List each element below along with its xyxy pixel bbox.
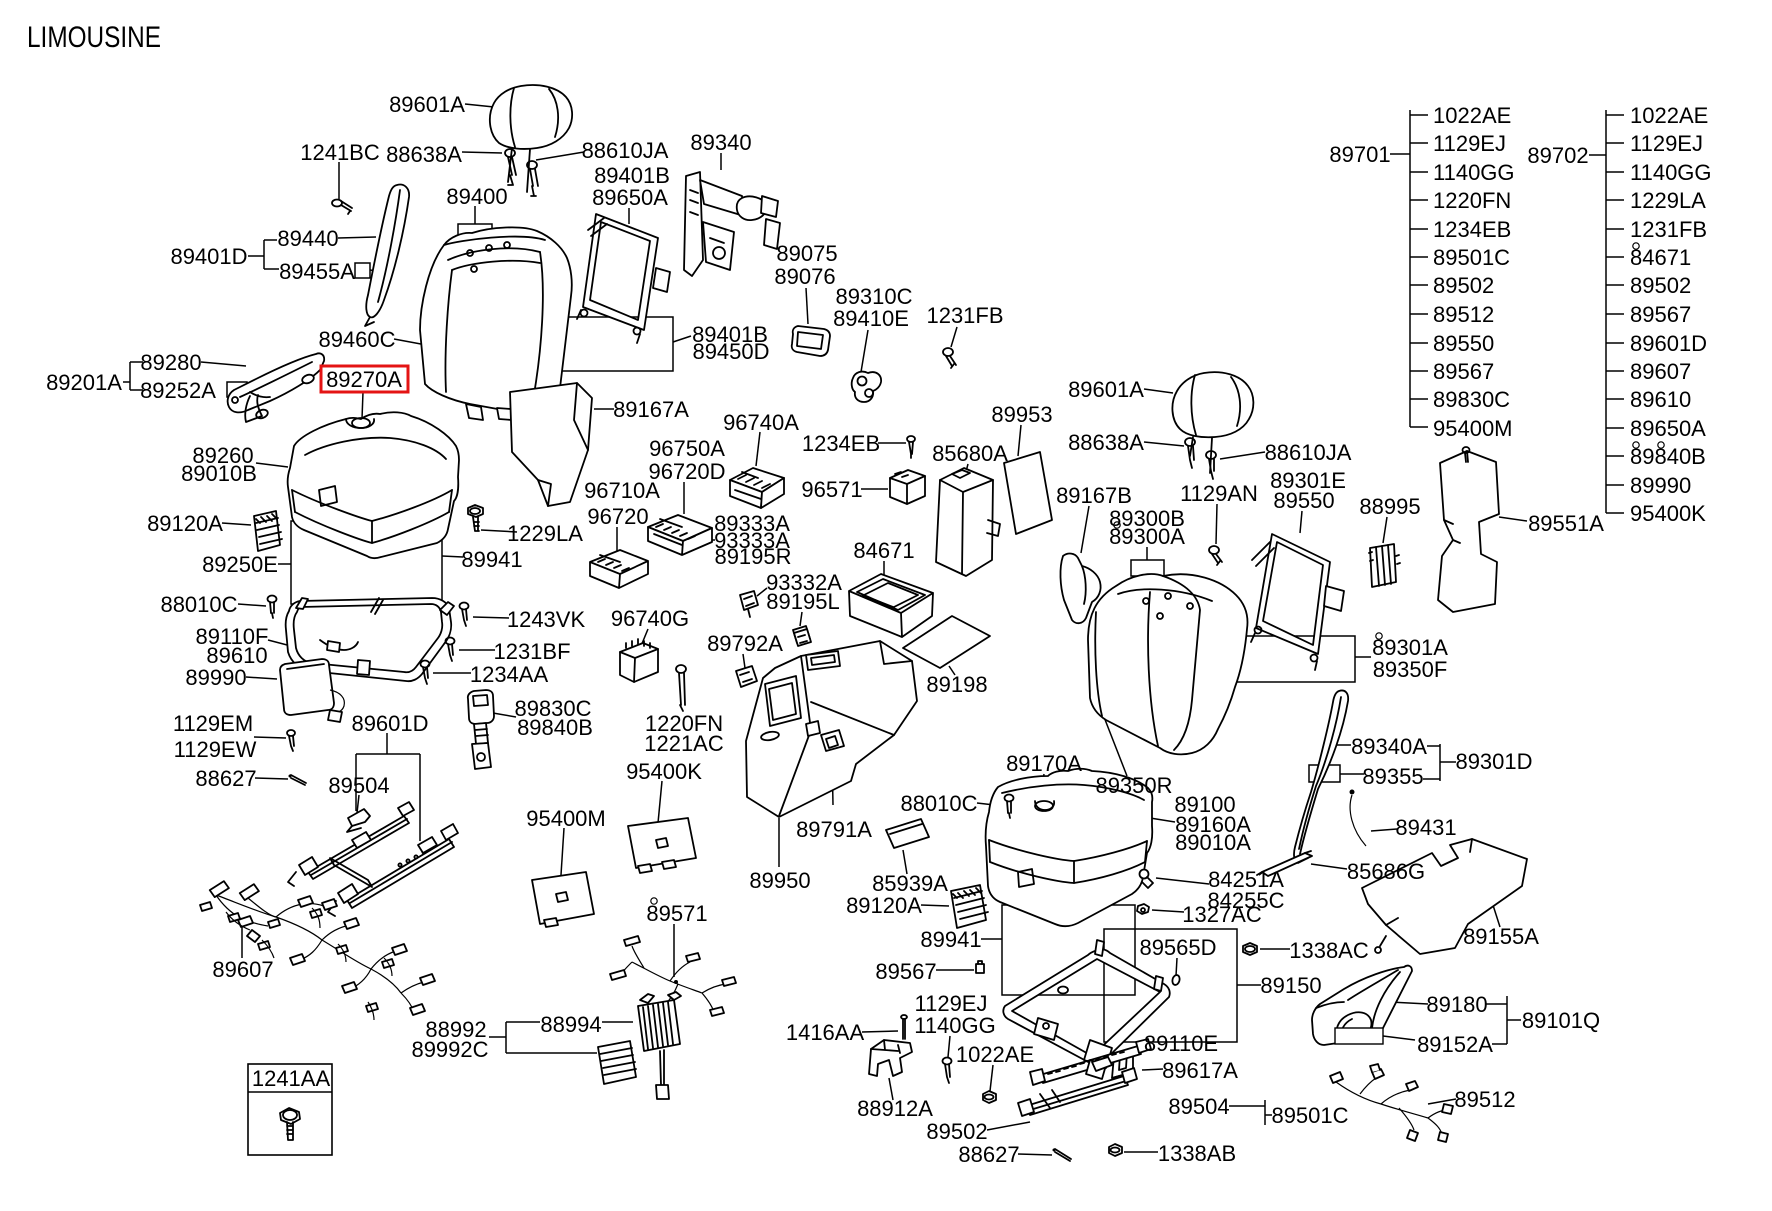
svg-text:89410E: 89410E <box>833 306 909 331</box>
svg-text:89195L: 89195L <box>766 589 839 614</box>
svg-text:89280: 89280 <box>140 350 201 375</box>
svg-text:89075: 89075 <box>776 241 837 266</box>
svg-text:89565D: 89565D <box>1139 935 1216 960</box>
svg-text:1234AA: 1234AA <box>470 662 549 687</box>
svg-text:1129EJ: 1129EJ <box>1433 131 1506 156</box>
svg-text:1231FB: 1231FB <box>926 303 1003 328</box>
svg-text:1129EM: 1129EM <box>173 711 253 736</box>
svg-text:89300A: 89300A <box>1109 524 1185 549</box>
svg-text:89830C: 89830C <box>1433 387 1510 412</box>
svg-text:89992C: 89992C <box>411 1037 488 1062</box>
svg-text:89120A: 89120A <box>147 511 223 536</box>
svg-text:89567: 89567 <box>1433 359 1494 384</box>
svg-text:89512: 89512 <box>1433 302 1494 327</box>
svg-text:88638A: 88638A <box>386 142 462 167</box>
svg-text:89076: 89076 <box>774 264 835 289</box>
svg-text:1129EJ: 1129EJ <box>1630 131 1703 156</box>
svg-text:1140GG: 1140GG <box>1630 160 1712 185</box>
svg-text:89941: 89941 <box>461 547 522 572</box>
svg-text:89152A: 89152A <box>1417 1032 1493 1057</box>
svg-text:89601A: 89601A <box>1068 377 1144 402</box>
svg-text:88610JA: 88610JA <box>582 138 669 163</box>
svg-text:96720D: 96720D <box>648 459 725 484</box>
svg-text:89571: 89571 <box>646 901 707 926</box>
svg-text:89350F: 89350F <box>1373 657 1448 682</box>
svg-text:95400M: 95400M <box>1433 416 1513 441</box>
svg-text:89340A: 89340A <box>1351 734 1427 759</box>
svg-text:89650A: 89650A <box>1630 416 1706 441</box>
svg-text:89601D: 89601D <box>351 711 428 736</box>
svg-text:89953: 89953 <box>991 402 1052 427</box>
svg-text:89431: 89431 <box>1395 815 1456 840</box>
svg-text:89617A: 89617A <box>1162 1058 1238 1083</box>
svg-text:89550: 89550 <box>1273 488 1334 513</box>
svg-text:1022AE: 1022AE <box>956 1042 1034 1067</box>
svg-text:84671: 84671 <box>1630 245 1691 270</box>
svg-text:89512: 89512 <box>1454 1087 1515 1112</box>
svg-text:89450D: 89450D <box>692 339 769 364</box>
svg-text:89791A: 89791A <box>796 817 872 842</box>
svg-text:1221AC: 1221AC <box>644 731 724 756</box>
svg-text:89110E: 89110E <box>1144 1031 1218 1056</box>
svg-text:89607: 89607 <box>1630 359 1691 384</box>
svg-text:89550: 89550 <box>1433 331 1494 356</box>
svg-text:89400: 89400 <box>446 184 507 209</box>
svg-text:84671: 84671 <box>853 538 914 563</box>
svg-text:89155A: 89155A <box>1463 924 1539 949</box>
svg-text:89167A: 89167A <box>613 397 689 422</box>
svg-text:1234EB: 1234EB <box>802 431 880 456</box>
svg-text:1243VK: 1243VK <box>507 607 586 632</box>
svg-text:89301D: 89301D <box>1455 749 1532 774</box>
svg-text:89440: 89440 <box>277 226 338 251</box>
svg-text:88912A: 88912A <box>857 1096 933 1121</box>
svg-text:88010C: 88010C <box>160 592 237 617</box>
svg-text:89941: 89941 <box>920 927 981 952</box>
svg-text:89501C: 89501C <box>1433 245 1510 270</box>
svg-text:89601D: 89601D <box>1630 331 1707 356</box>
svg-text:1229LA: 1229LA <box>507 521 583 546</box>
svg-text:1022AE: 1022AE <box>1630 103 1708 128</box>
svg-text:88627: 88627 <box>195 766 256 791</box>
svg-text:1338AB: 1338AB <box>1158 1141 1236 1166</box>
svg-text:89701: 89701 <box>1329 142 1390 167</box>
svg-text:1241BC: 1241BC <box>300 140 380 165</box>
svg-text:89990: 89990 <box>185 665 246 690</box>
svg-text:1129AN: 1129AN <box>1180 481 1258 506</box>
svg-text:89840B: 89840B <box>1630 444 1706 469</box>
svg-text:89792A: 89792A <box>707 631 783 656</box>
svg-text:96750A: 96750A <box>649 436 725 461</box>
svg-text:89567: 89567 <box>875 959 936 984</box>
svg-text:95400M: 95400M <box>526 806 606 831</box>
svg-text:88627: 88627 <box>958 1142 1019 1167</box>
svg-text:1327AC: 1327AC <box>1182 902 1262 927</box>
svg-text:89150: 89150 <box>1260 973 1321 998</box>
svg-text:89010A: 89010A <box>1175 830 1251 855</box>
svg-text:89502: 89502 <box>1630 273 1691 298</box>
svg-text:89504: 89504 <box>328 773 389 798</box>
svg-text:89195R: 89195R <box>714 544 791 569</box>
svg-text:89990: 89990 <box>1630 473 1691 498</box>
svg-text:89601A: 89601A <box>389 92 465 117</box>
svg-text:89460C: 89460C <box>318 327 395 352</box>
svg-text:89650A: 89650A <box>592 185 668 210</box>
svg-text:1220FN: 1220FN <box>1433 188 1511 213</box>
svg-text:1241AA: 1241AA <box>252 1066 331 1091</box>
svg-text:1234EB: 1234EB <box>1433 217 1511 242</box>
svg-text:89355: 89355 <box>1362 764 1423 789</box>
svg-text:88610JA: 88610JA <box>1265 440 1352 465</box>
svg-text:LIMOUSINE: LIMOUSINE <box>27 21 161 54</box>
svg-text:89610: 89610 <box>1630 387 1691 412</box>
svg-text:88010C: 88010C <box>900 791 977 816</box>
svg-text:1229LA: 1229LA <box>1630 188 1706 213</box>
svg-text:89340: 89340 <box>690 130 751 155</box>
svg-text:89504: 89504 <box>1168 1094 1229 1119</box>
svg-text:89252A: 89252A <box>140 378 216 403</box>
svg-text:1416AA: 1416AA <box>786 1020 865 1045</box>
svg-text:89120A: 89120A <box>846 893 922 918</box>
svg-text:89567: 89567 <box>1630 302 1691 327</box>
svg-text:89501C: 89501C <box>1271 1103 1348 1128</box>
svg-text:89180: 89180 <box>1426 992 1487 1017</box>
svg-text:1338AC: 1338AC <box>1289 938 1369 963</box>
svg-text:1231BF: 1231BF <box>493 639 570 664</box>
svg-text:89250E: 89250E <box>202 552 278 577</box>
svg-text:89101Q: 89101Q <box>1522 1008 1600 1033</box>
svg-text:89607: 89607 <box>212 957 273 982</box>
svg-text:96710A: 96710A <box>584 478 660 503</box>
svg-text:89198: 89198 <box>926 672 987 697</box>
svg-text:1140GG: 1140GG <box>914 1013 996 1038</box>
svg-text:89551A: 89551A <box>1528 511 1604 536</box>
svg-text:1140GG: 1140GG <box>1433 160 1515 185</box>
svg-text:96720: 96720 <box>587 504 648 529</box>
svg-text:88994: 88994 <box>540 1012 601 1037</box>
svg-text:89010B: 89010B <box>181 461 257 486</box>
svg-text:1129EW: 1129EW <box>174 737 257 762</box>
svg-text:89201A: 89201A <box>46 370 122 395</box>
svg-text:89840B: 89840B <box>517 715 593 740</box>
svg-text:85680A: 85680A <box>932 441 1008 466</box>
svg-text:89502: 89502 <box>1433 273 1494 298</box>
svg-text:89455A: 89455A <box>279 259 355 284</box>
svg-text:85686G: 85686G <box>1347 859 1425 884</box>
svg-text:96740A: 96740A <box>723 410 799 435</box>
svg-text:1022AE: 1022AE <box>1433 103 1511 128</box>
svg-text:89502: 89502 <box>926 1119 987 1144</box>
svg-text:95400K: 95400K <box>1630 501 1706 526</box>
svg-text:89170A: 89170A <box>1006 751 1082 776</box>
svg-text:95400K: 95400K <box>626 759 702 784</box>
svg-text:89401D: 89401D <box>170 244 247 269</box>
svg-text:96740G: 96740G <box>611 606 689 631</box>
svg-text:89950: 89950 <box>749 868 810 893</box>
svg-text:89702: 89702 <box>1527 143 1588 168</box>
svg-text:89167B: 89167B <box>1056 483 1132 508</box>
svg-text:89350R: 89350R <box>1095 773 1172 798</box>
svg-text:89270A: 89270A <box>326 367 402 392</box>
svg-text:1231FB: 1231FB <box>1630 217 1707 242</box>
svg-text:88995: 88995 <box>1359 494 1420 519</box>
svg-text:88638A: 88638A <box>1068 430 1144 455</box>
svg-text:96571: 96571 <box>801 477 862 502</box>
